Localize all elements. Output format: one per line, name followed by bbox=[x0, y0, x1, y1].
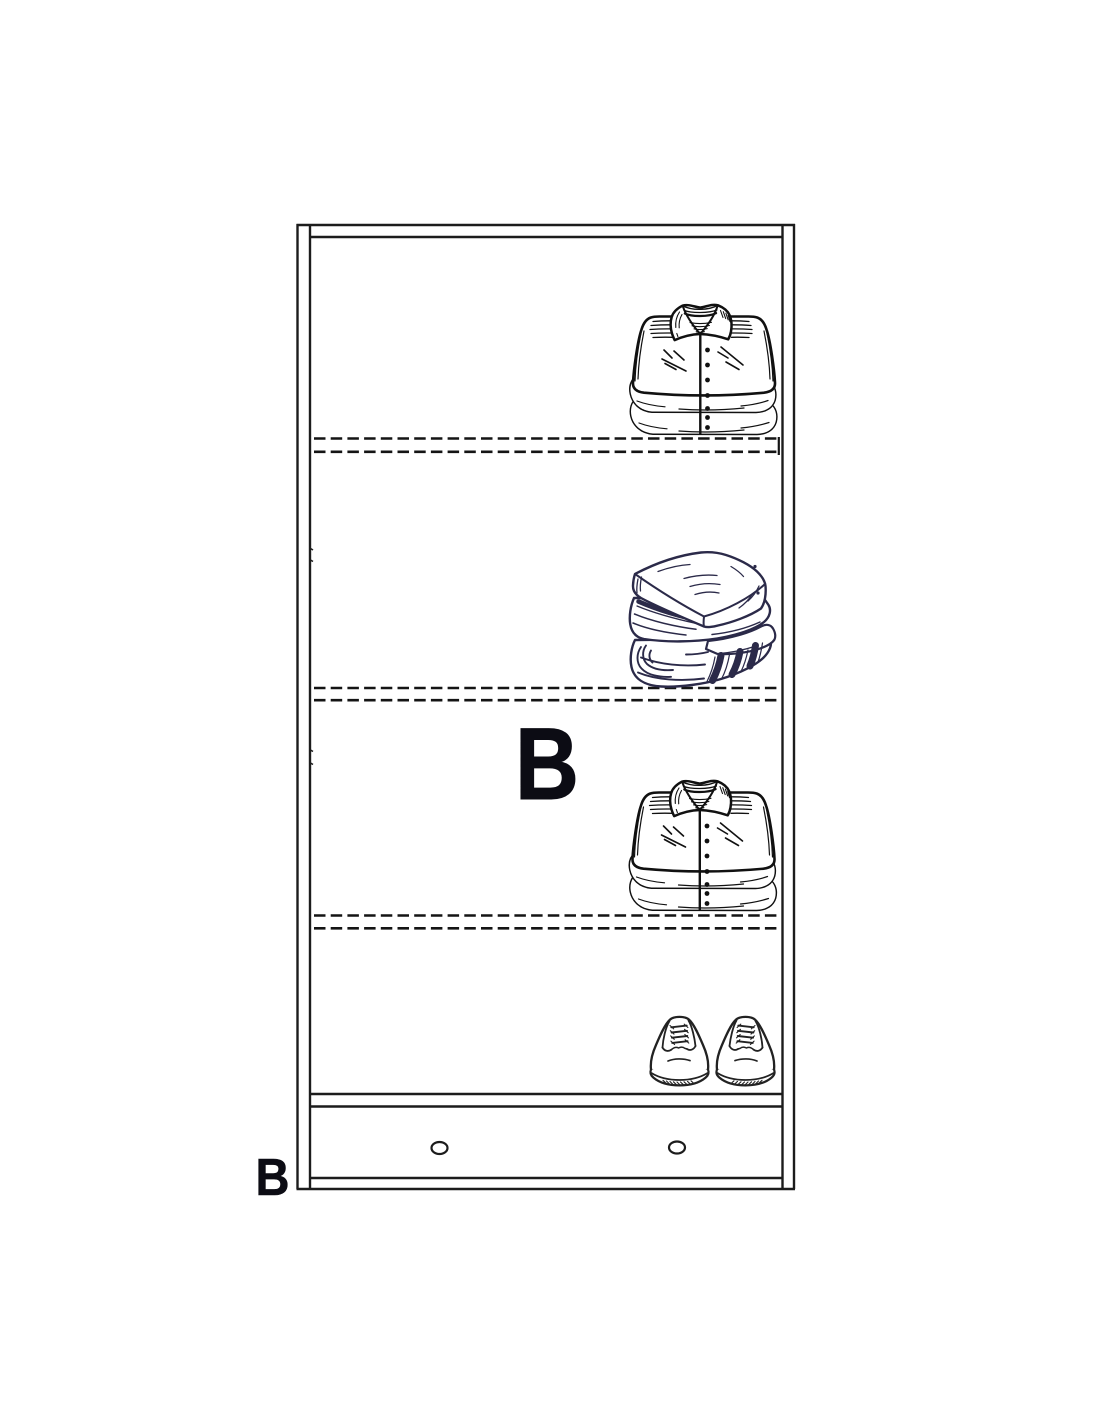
svg-text:B: B bbox=[515, 707, 579, 821]
svg-text:B: B bbox=[256, 1149, 290, 1207]
